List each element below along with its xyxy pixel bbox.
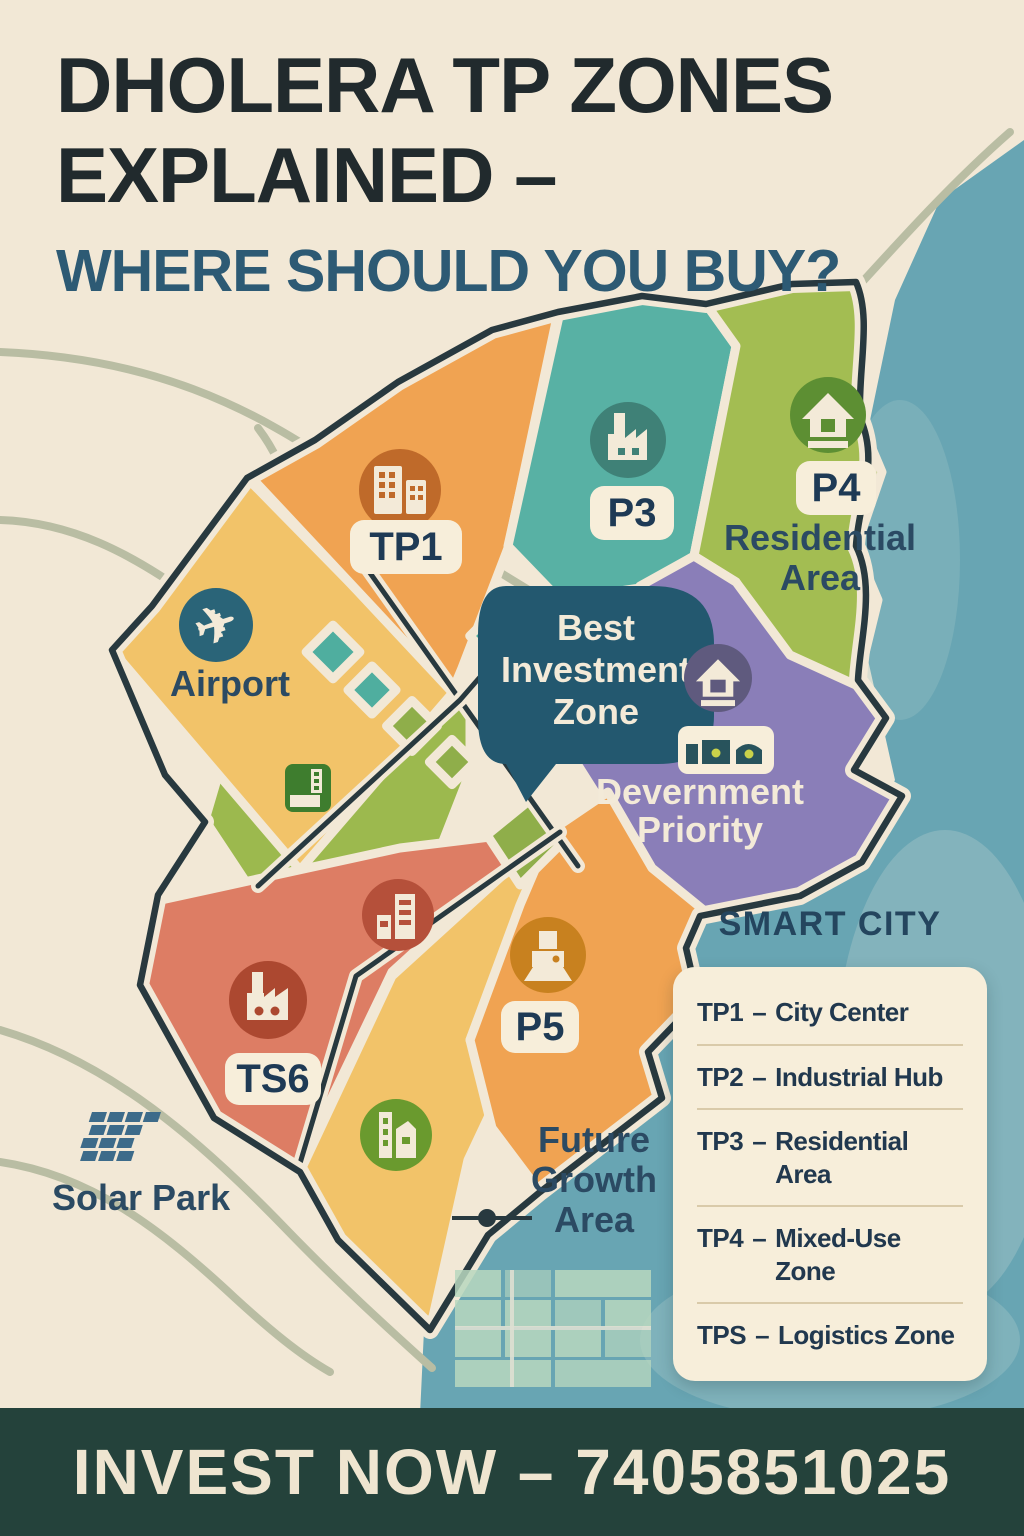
airport-plane-icon: ✈	[179, 588, 253, 662]
best-investment-label: Best	[557, 607, 635, 648]
legend-row-tp3: TP3 – Residential Area	[697, 1110, 963, 1207]
p4-caption: Residential	[724, 517, 916, 558]
legend-code: TP3	[697, 1125, 743, 1158]
cta-banner: INVEST NOW – 7405851025	[0, 1408, 1024, 1536]
legend-row-tp1: TP1 – City Center	[697, 981, 963, 1046]
priority-warehouse-icon	[678, 726, 774, 774]
legend-row-tps: TPS – Logistics Zone	[697, 1304, 963, 1367]
p3-factory-icon	[590, 402, 666, 478]
legend-code: TP2	[697, 1061, 743, 1094]
industrial-buildings-icon	[362, 879, 434, 951]
legend-separator: –	[755, 1319, 769, 1352]
legend-title: SMART CITY	[673, 905, 987, 944]
solar-park-icon	[76, 1112, 161, 1161]
poster: Best Investment Zone ✈	[0, 0, 1024, 1536]
best-investment-label: Zone	[553, 691, 639, 732]
p4-home-icon	[790, 377, 866, 453]
poster-title-line1: DHOLERA TP ZONES	[56, 40, 840, 130]
legend-row-tp2: TP2 – Industrial Hub	[697, 1046, 963, 1111]
poster-subtitle: WHERE SHOULD YOU BUY?	[56, 237, 840, 305]
future-growth-label: Area	[554, 1199, 635, 1240]
p5-monument-icon	[510, 917, 586, 993]
legend-separator: –	[752, 996, 766, 1029]
legend-name: City Center	[775, 996, 963, 1029]
legend-row-tp4: TP4 – Mixed-Use Zone	[697, 1207, 963, 1304]
ts6-label-chip: TS6	[225, 1053, 321, 1105]
p4-caption: Area	[780, 557, 861, 598]
p4-label: P4	[812, 466, 862, 510]
legend-code: TP1	[697, 996, 743, 1029]
tp1-label-chip: TP1	[350, 520, 462, 574]
poster-title-line2: EXPLAINED –	[56, 130, 840, 220]
solar-park-label: Solar Park	[52, 1177, 231, 1218]
legend-separator: –	[752, 1125, 766, 1158]
legend-separator: –	[752, 1222, 766, 1255]
legend-code: TP4	[697, 1222, 743, 1255]
p3-label: P3	[608, 491, 657, 535]
development-priority-label: Priority	[637, 809, 763, 850]
p3-label-chip: P3	[590, 486, 674, 540]
legend-name: Residential Area	[775, 1125, 963, 1190]
airport-label: Airport	[170, 663, 290, 704]
best-investment-label: Investment	[501, 649, 691, 690]
legend-name: Mixed-Use Zone	[775, 1222, 963, 1287]
legend-code: TPS	[697, 1319, 746, 1352]
ts6-factory-icon	[229, 961, 307, 1039]
ts6-label: TS6	[236, 1057, 309, 1101]
p5-label: P5	[516, 1005, 565, 1049]
future-growth-label: Growth	[531, 1159, 657, 1200]
tp1-buildings-icon	[359, 449, 441, 531]
legend-name: Logistics Zone	[778, 1319, 963, 1352]
p4-label-chip: P4	[796, 461, 876, 515]
p5-label-chip: P5	[501, 1001, 579, 1053]
legend-box: TP1 – City Center TP2 – Industrial Hub T…	[673, 967, 987, 1381]
legend-separator: –	[752, 1061, 766, 1094]
tp1-label: TP1	[369, 525, 442, 569]
cta-text: INVEST NOW – 7405851025	[73, 1435, 951, 1509]
legend-name: Industrial Hub	[775, 1061, 963, 1094]
growth-building-icon	[360, 1099, 432, 1171]
logistics-shed-icon	[285, 764, 331, 812]
priority-home-icon	[684, 644, 752, 712]
poster-header: DHOLERA TP ZONES EXPLAINED – WHERE SHOUL…	[56, 40, 840, 305]
development-priority-label: Devernment	[596, 771, 804, 812]
future-growth-label: Future	[538, 1119, 650, 1160]
